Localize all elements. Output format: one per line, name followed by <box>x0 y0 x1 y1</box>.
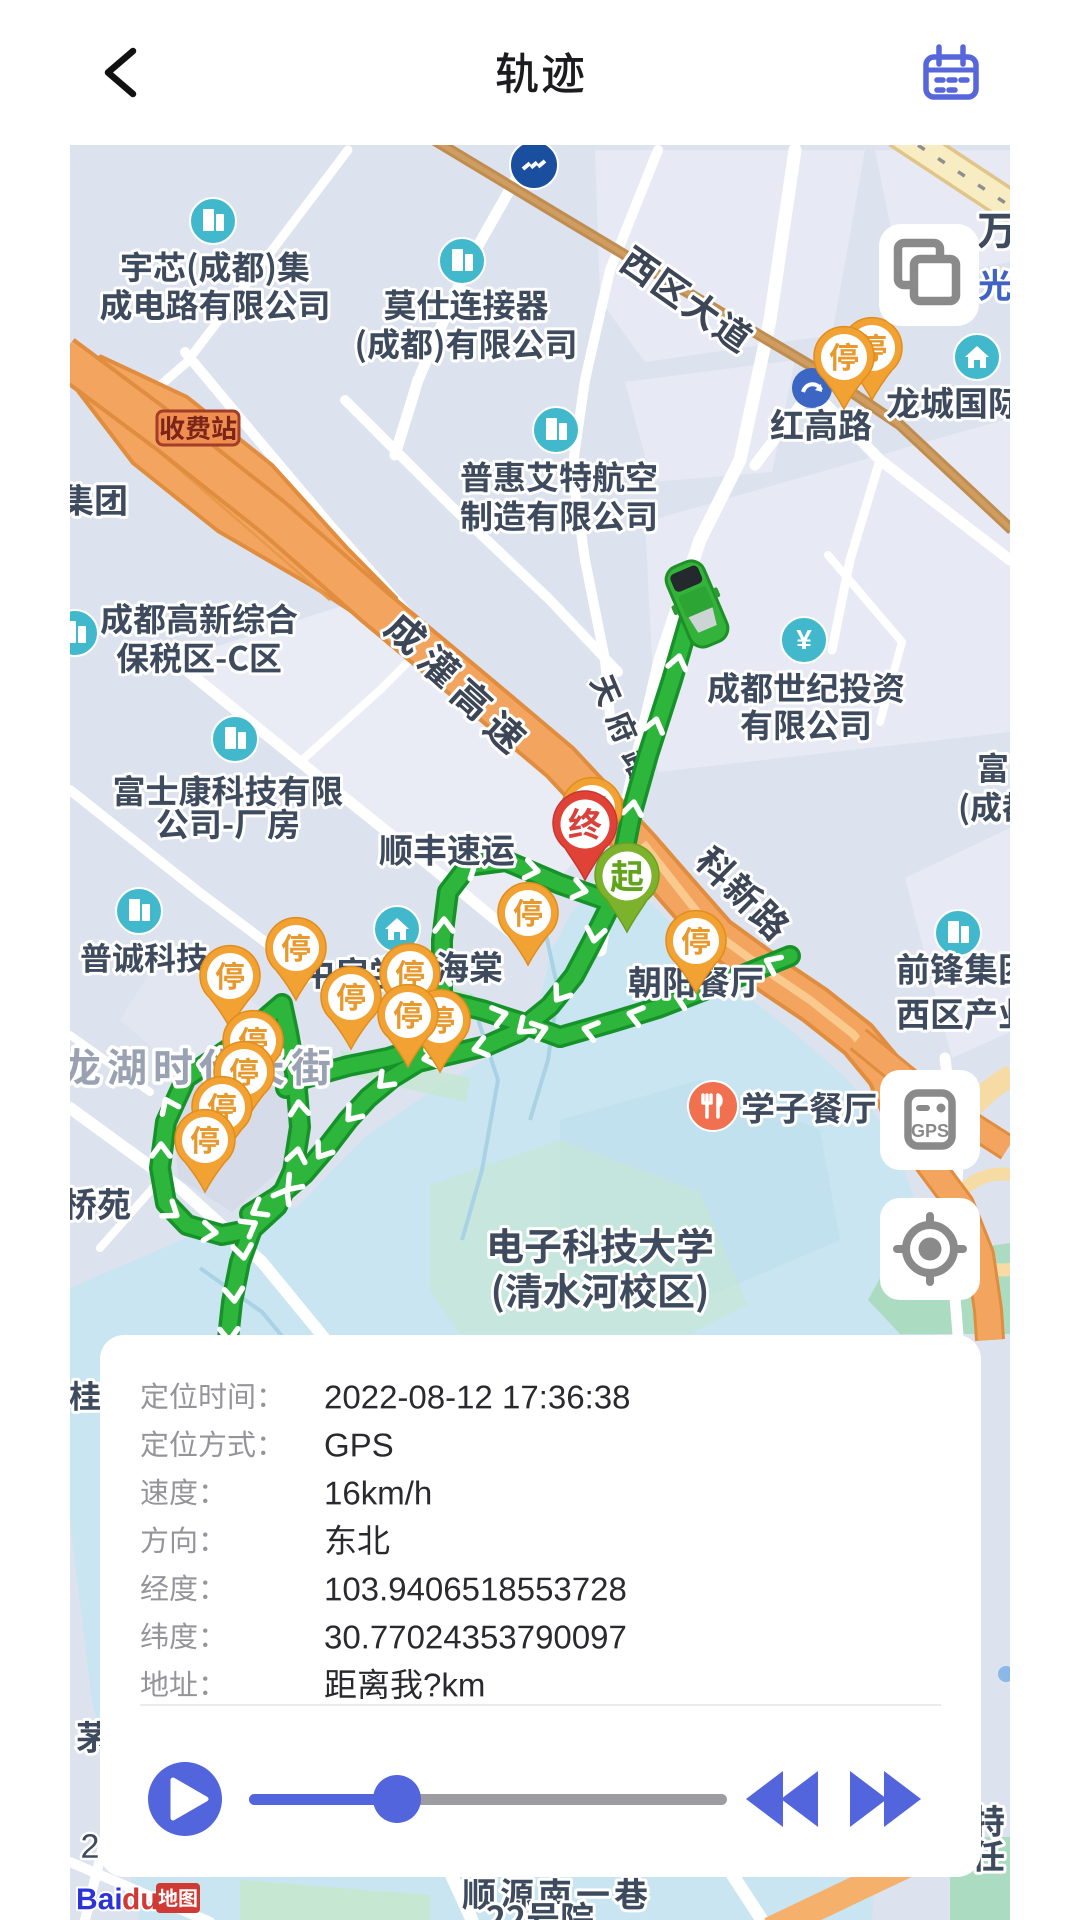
svg-text:¥: ¥ <box>796 624 812 655</box>
svg-text:GPS: GPS <box>911 1121 949 1141</box>
